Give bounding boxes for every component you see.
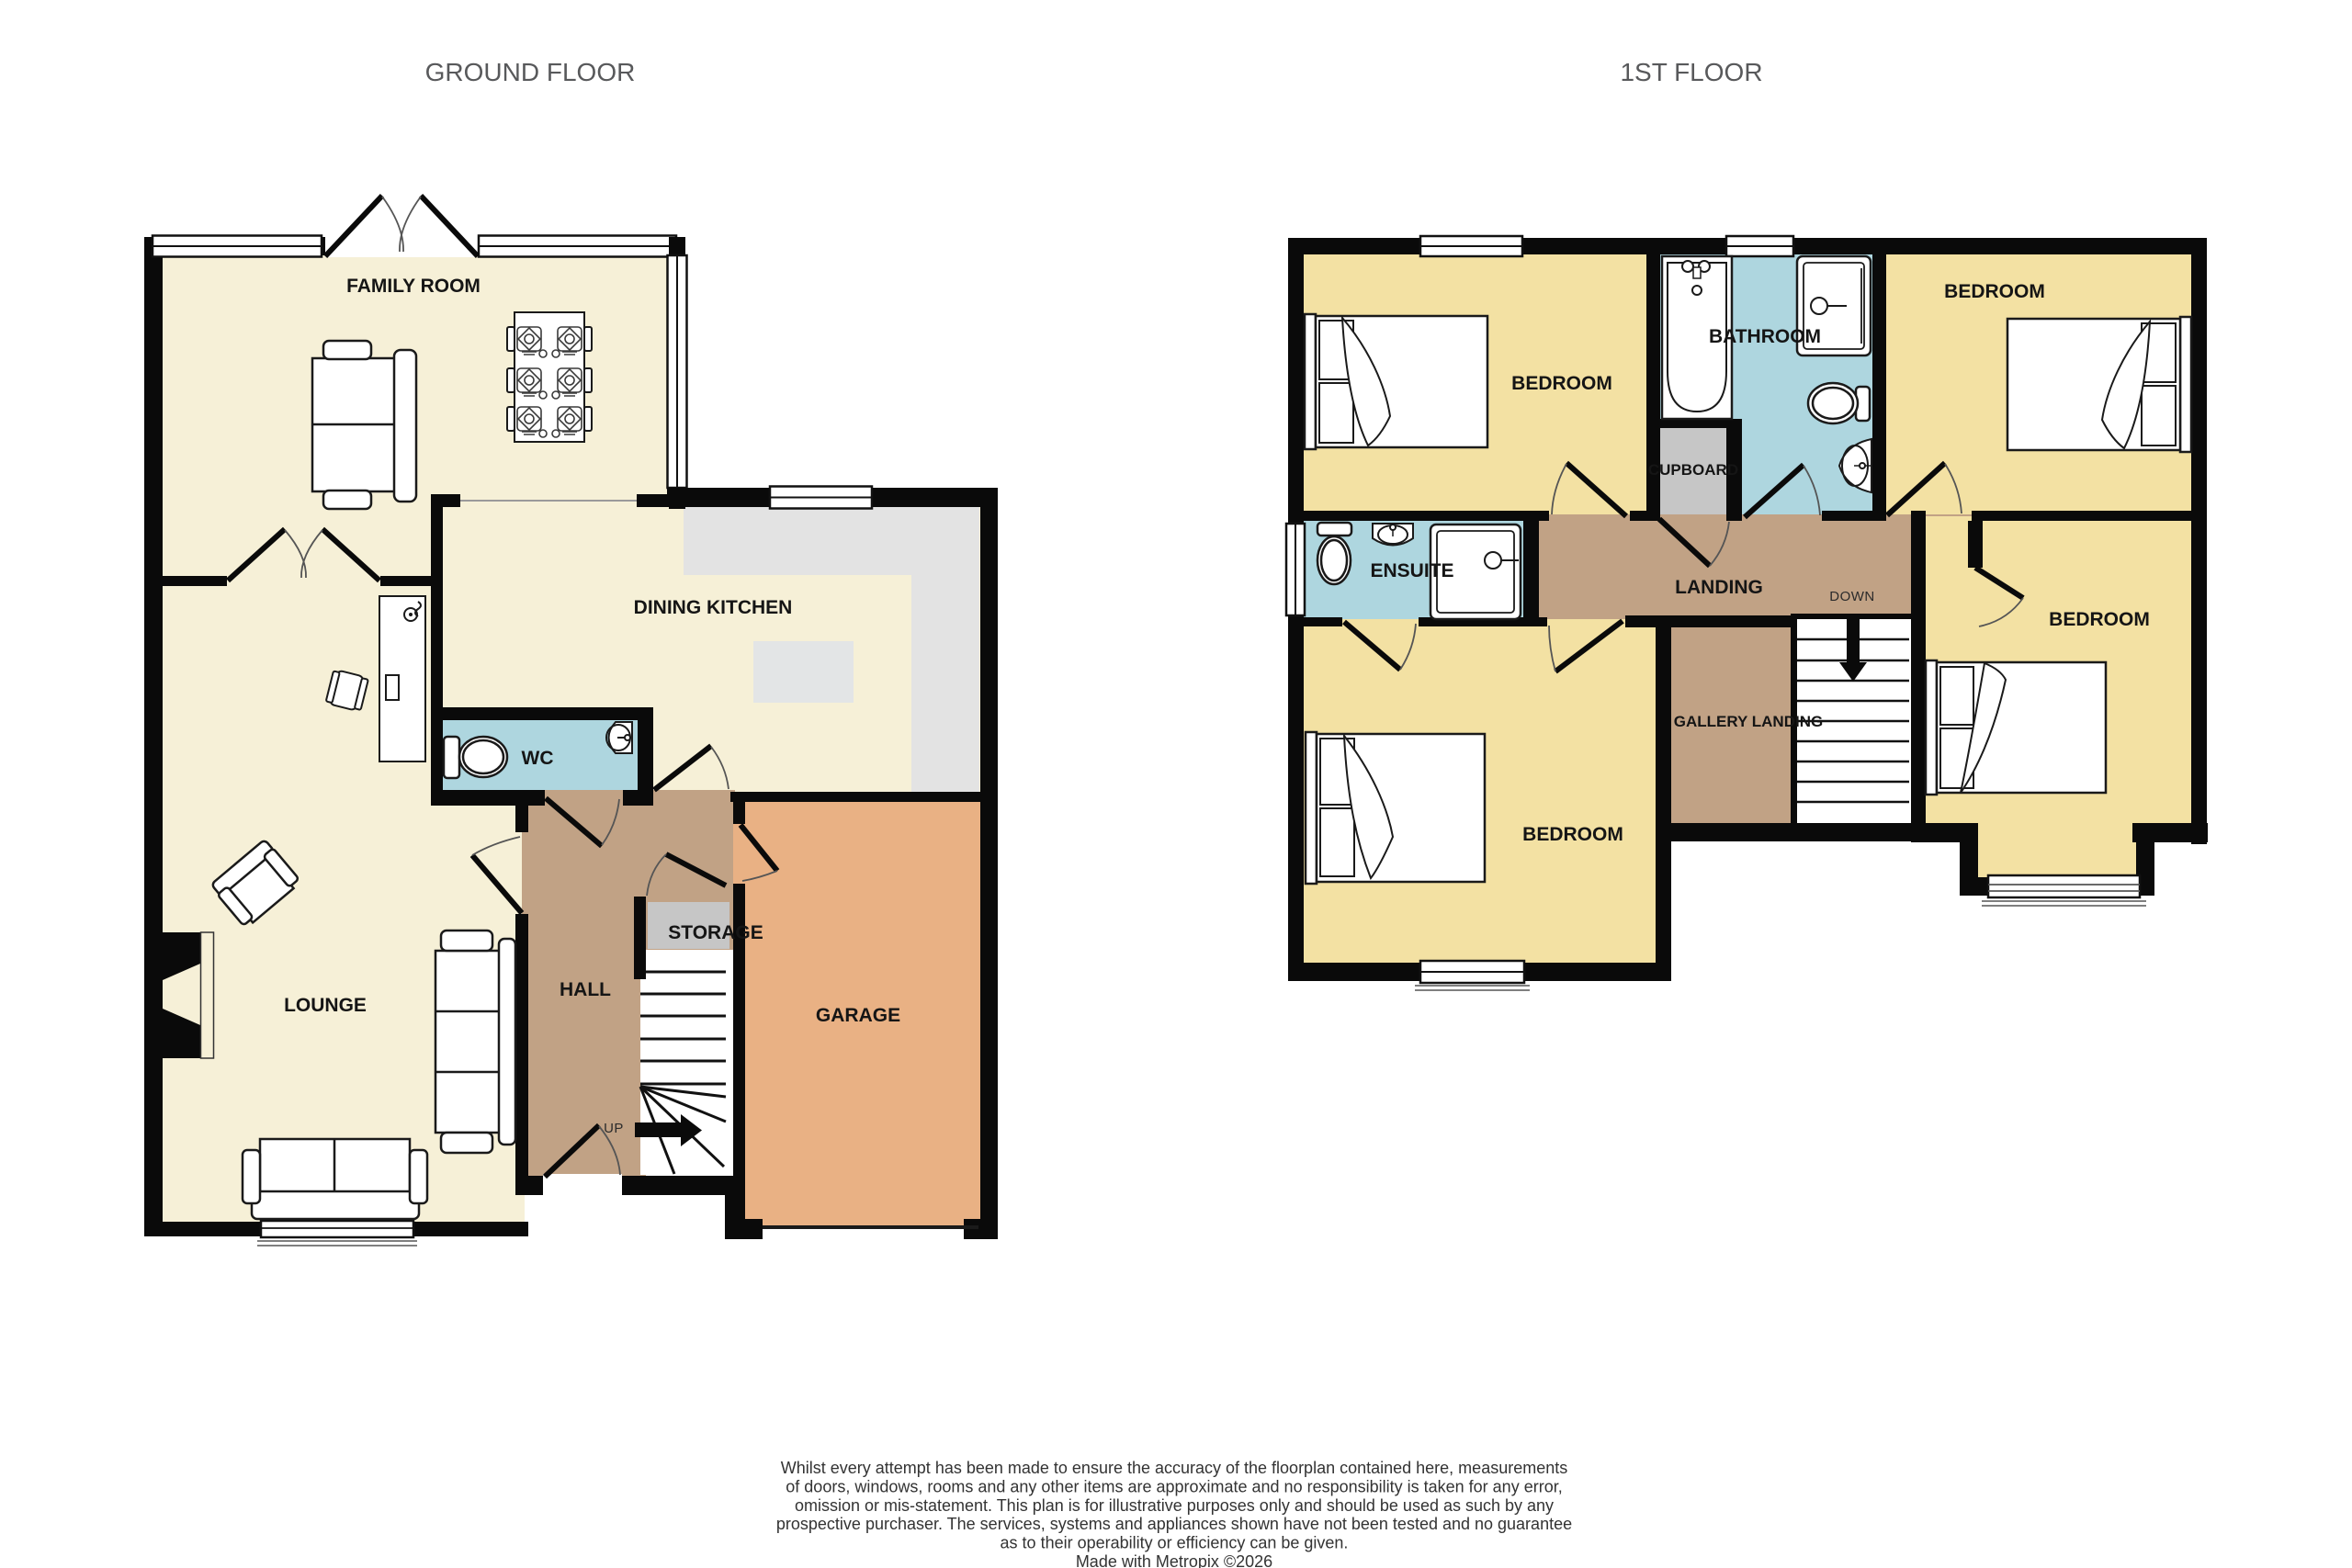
svg-text:DINING KITCHEN: DINING KITCHEN	[634, 597, 793, 618]
svg-text:BEDROOM: BEDROOM	[1944, 281, 2045, 302]
svg-text:GALLERY LANDING: GALLERY LANDING	[1674, 713, 1823, 730]
svg-text:as to their operability or eff: as to their operability or efficiency ca…	[1001, 1534, 1349, 1552]
svg-text:BEDROOM: BEDROOM	[1522, 824, 1623, 845]
svg-text:BEDROOM: BEDROOM	[2049, 609, 2150, 630]
svg-text:GROUND FLOOR: GROUND FLOOR	[425, 58, 636, 86]
svg-text:of doors, windows, rooms and a: of doors, windows, rooms and any other i…	[786, 1477, 1562, 1495]
svg-text:Made with Metropix ©2026: Made with Metropix ©2026	[1076, 1552, 1272, 1568]
svg-text:CUPBOARD: CUPBOARD	[1648, 461, 1738, 479]
svg-text:BEDROOM: BEDROOM	[1511, 373, 1612, 394]
svg-text:Whilst every attempt has been: Whilst every attempt has been made to en…	[781, 1459, 1567, 1477]
svg-text:UP: UP	[604, 1121, 624, 1136]
svg-text:omission or mis-statement. Thi: omission or mis-statement. This plan is …	[795, 1496, 1554, 1515]
svg-text:LANDING: LANDING	[1675, 577, 1763, 598]
svg-text:STORAGE: STORAGE	[668, 922, 763, 943]
svg-text:WC: WC	[522, 748, 554, 769]
svg-text:BATHROOM: BATHROOM	[1709, 326, 1821, 347]
svg-text:prospective purchaser. The ser: prospective purchaser. The services, sys…	[776, 1515, 1572, 1533]
svg-text:ENSUITE: ENSUITE	[1370, 560, 1453, 581]
svg-text:FAMILY ROOM: FAMILY ROOM	[346, 276, 481, 297]
svg-text:1ST FLOOR: 1ST FLOOR	[1620, 58, 1762, 86]
svg-text:LOUNGE: LOUNGE	[284, 995, 367, 1016]
svg-text:HALL: HALL	[560, 979, 611, 1000]
svg-text:DOWN: DOWN	[1829, 589, 1875, 604]
svg-text:GARAGE: GARAGE	[816, 1005, 900, 1026]
